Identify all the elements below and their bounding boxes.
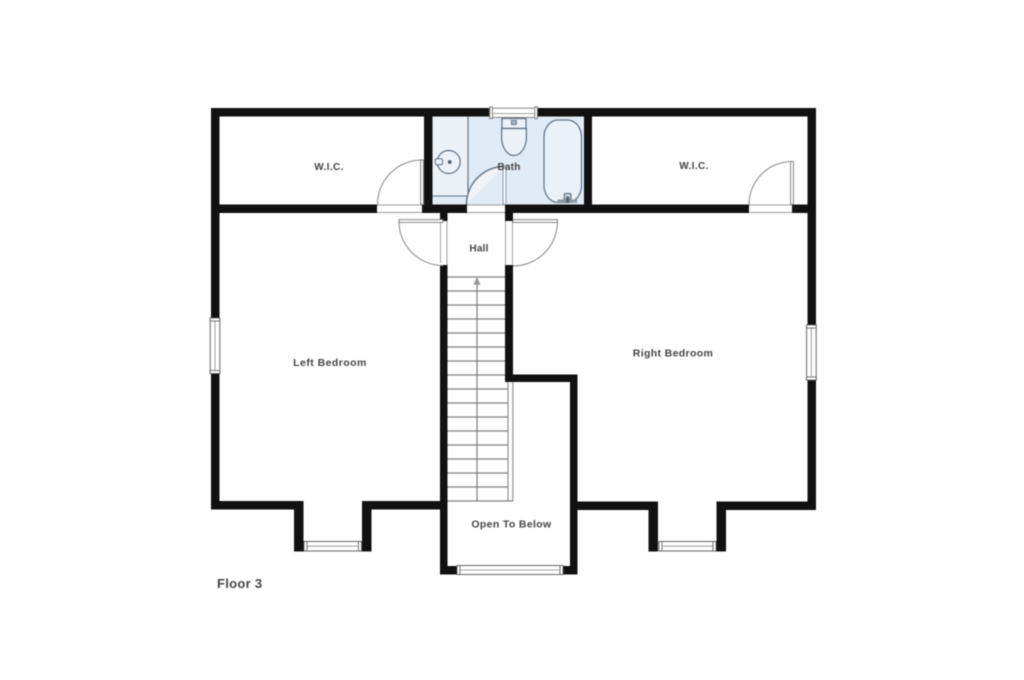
svg-text:Hall: Hall — [469, 244, 488, 255]
svg-text:Floor 3: Floor 3 — [217, 576, 262, 591]
svg-text:Open To Below: Open To Below — [471, 519, 552, 531]
svg-text:Bath: Bath — [497, 162, 520, 173]
svg-text:W.I.C.: W.I.C. — [679, 161, 709, 172]
svg-text:W.I.C.: W.I.C. — [314, 162, 344, 173]
svg-text:Left Bedroom: Left Bedroom — [293, 357, 367, 369]
svg-text:Right Bedroom: Right Bedroom — [633, 348, 713, 360]
